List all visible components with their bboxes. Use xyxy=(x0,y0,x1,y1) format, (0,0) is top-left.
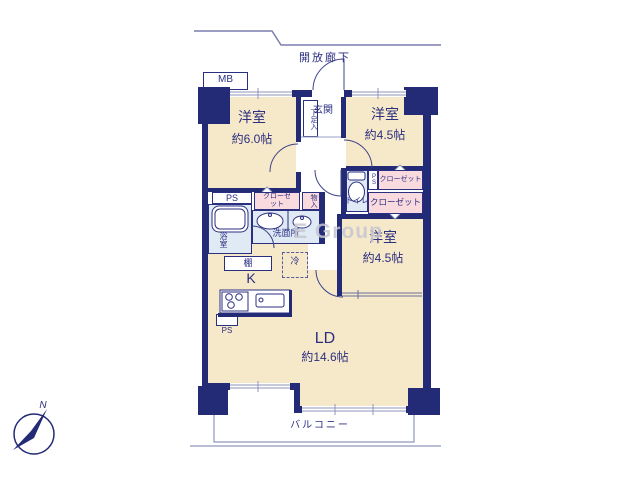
wall-room2-bottom xyxy=(346,166,423,170)
closet-right-top-label: クローゼット xyxy=(378,176,423,186)
pipe-space-kitchen-box xyxy=(216,314,238,326)
wall-room1-right xyxy=(296,97,301,188)
room1-size-label: 約6.0帖 xyxy=(216,133,288,147)
watermark: E Group xyxy=(268,220,408,248)
open-corridor-label: 開放廊下 xyxy=(290,52,360,65)
wall-right xyxy=(423,90,431,390)
open-corridor-outline xyxy=(194,31,441,45)
wall-bottom-right xyxy=(294,406,416,413)
refrigerator-label: 冷 xyxy=(282,256,308,267)
compass xyxy=(13,409,54,454)
closet-left-label: クローゼット xyxy=(261,193,293,209)
ps-kitchen-label: PS xyxy=(211,327,243,337)
ps-right-label: PS xyxy=(369,172,377,188)
living-dining-size-label: 約14.6帖 xyxy=(286,351,364,365)
living-dining-name-label: LD xyxy=(296,330,354,348)
wall-bottom-left xyxy=(202,383,298,390)
room2-size-label: 約4.5帖 xyxy=(352,129,418,142)
shoe-cabinet-label: 下足入 xyxy=(304,102,317,136)
meter-box-label: MB xyxy=(203,74,248,88)
room3-size-label: 約4.5帖 xyxy=(350,252,416,265)
room2-name-label: 洋室 xyxy=(354,107,416,123)
pillar-bottom-left xyxy=(198,386,228,415)
closet-right-mid-label: クローゼット xyxy=(368,198,423,209)
compass-north-label: N xyxy=(36,400,50,412)
floorplan-canvas: 開放廊下 MB 洋室 約6.0帖 玄関 下足入 洋室 約4.5帖 PS クローゼ… xyxy=(0,0,640,480)
wall-room1-bottom xyxy=(208,188,301,192)
wall-top xyxy=(202,90,432,97)
ps-left-label: PS xyxy=(212,193,252,203)
kitchen-label: K xyxy=(236,271,266,288)
wall-left xyxy=(202,90,208,390)
toilet-label: トイレ xyxy=(344,197,370,208)
compass-needle xyxy=(13,409,47,450)
shelf-label: 棚 xyxy=(224,258,272,270)
wall-closet-bottom xyxy=(337,214,423,219)
bathroom-label: 浴室 xyxy=(214,228,227,252)
storage-label: 物入 xyxy=(305,193,317,209)
balcony-label: バルコニー xyxy=(282,420,358,433)
room1-name-label: 洋室 xyxy=(220,110,284,126)
